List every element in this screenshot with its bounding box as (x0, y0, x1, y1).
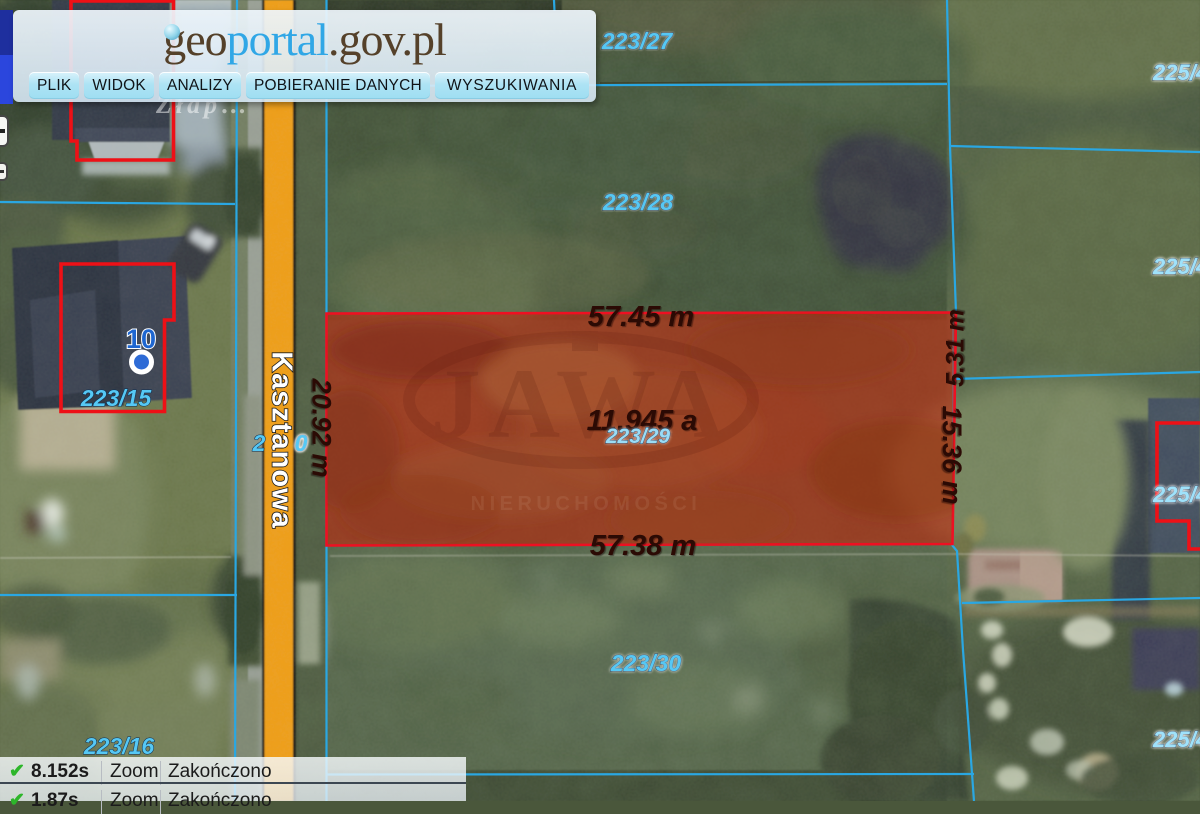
svg-text:223/28: 223/28 (602, 189, 674, 215)
svg-text:57.45 m: 57.45 m (588, 301, 694, 333)
svg-text:15.36 m: 15.36 m (937, 405, 967, 504)
svg-text:JAWA: JAWA (431, 348, 731, 459)
svg-text:223/29: 223/29 (605, 425, 671, 448)
svg-text:223/16: 223/16 (83, 733, 155, 759)
svg-text:223/27: 223/27 (601, 28, 674, 54)
svg-text:225/4: 225/4 (1152, 482, 1200, 507)
svg-text:223/15: 223/15 (80, 385, 153, 411)
svg-text:20.92 m: 20.92 m (306, 377, 336, 477)
svg-text:2: 2 (252, 430, 266, 456)
svg-text:223/30: 223/30 (610, 650, 682, 676)
svg-text:NIERUCHOMOŚCI: NIERUCHOMOŚCI (471, 491, 702, 515)
svg-text:225/4: 225/4 (1152, 60, 1200, 85)
svg-text:225/4: 225/4 (1152, 254, 1200, 279)
svg-text:225/4: 225/4 (1152, 727, 1200, 752)
svg-text:10: 10 (126, 324, 156, 354)
svg-text:5.31 m: 5.31 m (942, 309, 970, 387)
svg-text:Kasztanowa: Kasztanowa (265, 351, 297, 529)
svg-text:57.38 m: 57.38 m (590, 530, 696, 562)
